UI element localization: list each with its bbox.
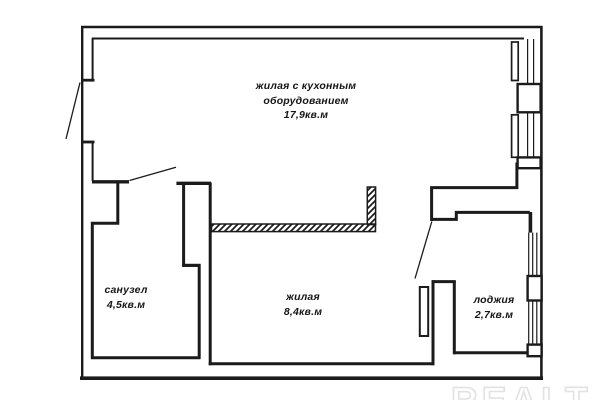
window-sash <box>512 115 519 158</box>
loggia-window-pier <box>528 276 542 301</box>
room-label-living-kitchen: жилая с кухонным оборудованием 17,9кв.м <box>256 79 356 123</box>
hatched-partition <box>212 187 376 232</box>
loggia-window-pier <box>528 345 542 357</box>
room-area: 8,4кв.м <box>284 305 322 320</box>
bathroom-wall-notch <box>92 183 118 360</box>
window-pier <box>518 84 541 112</box>
top-right-window <box>512 39 541 168</box>
room-area: 4,5кв.м <box>104 298 147 313</box>
floorplan-image: REALT жилая с кухонным оборудованием 17,… <box>0 0 600 400</box>
upper-divider-wall <box>432 164 541 233</box>
entrance-door-swing <box>66 83 80 140</box>
bathroom-wall-right <box>184 184 200 359</box>
bathroom-walls <box>91 167 211 359</box>
bathroom-door-swing <box>130 167 177 180</box>
room-name-line: жилая с кухонным <box>256 79 356 94</box>
room-name-line: жилая <box>284 290 322 305</box>
room-name-line: санузел <box>104 283 147 298</box>
room-name-line: лоджия <box>474 293 515 308</box>
opening-jamb-bottom <box>81 141 95 144</box>
opening-jamb-top <box>81 79 95 82</box>
room-area: 2,7кв.м <box>474 308 515 323</box>
loggia-left-wall <box>432 280 456 365</box>
window-pier <box>518 157 541 168</box>
room-label-loggia: лоджия 2,7кв.м <box>474 293 515 322</box>
loggia-window <box>528 233 542 357</box>
floorplan-drawing: REALT <box>0 0 600 400</box>
loggia-door <box>415 222 432 337</box>
divider-bottom-face <box>432 212 530 219</box>
loggia-door-leaf <box>420 287 428 336</box>
hatched-wall-horizontal <box>212 224 376 232</box>
entrance-opening <box>66 79 95 144</box>
loggia-door-swing <box>415 222 432 279</box>
living-room-walls <box>209 183 435 366</box>
watermark-text: REALT <box>451 380 592 400</box>
room-area: 17,9кв.м <box>256 108 356 123</box>
hatched-wall-vertical <box>367 187 375 225</box>
room-name-line: оборудованием <box>256 94 356 109</box>
room-label-bathroom: санузел 4,5кв.м <box>104 283 147 312</box>
window-sash <box>512 42 519 81</box>
room-label-living: жилая 8,4кв.м <box>284 290 322 319</box>
